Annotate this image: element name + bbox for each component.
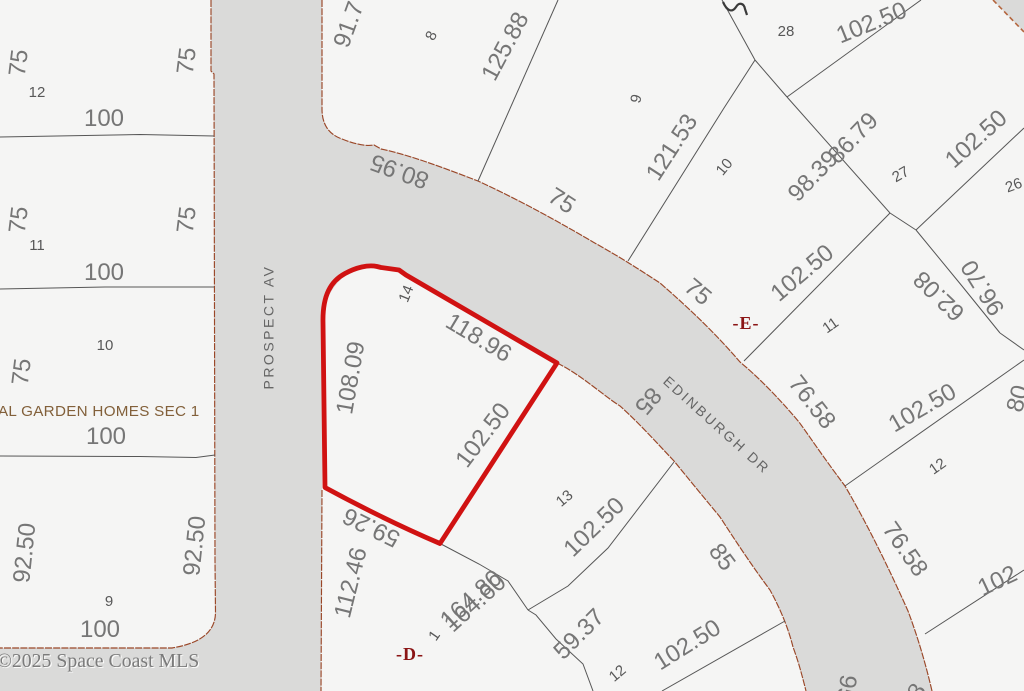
svg-text:28: 28: [778, 23, 795, 40]
svg-text:PROSPECT AV: PROSPECT AV: [261, 264, 277, 389]
svg-text:12: 12: [29, 84, 46, 101]
svg-text:75: 75: [4, 205, 34, 235]
svg-text:11: 11: [29, 237, 45, 254]
svg-text:-D-: -D-: [396, 644, 424, 664]
svg-text:©2025 Space Coast MLS: ©2025 Space Coast MLS: [0, 650, 199, 672]
svg-text:75: 75: [7, 357, 37, 387]
svg-text:100: 100: [84, 259, 124, 286]
svg-text:AL GARDEN HOMES SEC 1: AL GARDEN HOMES SEC 1: [0, 403, 200, 420]
svg-text:10: 10: [97, 337, 114, 354]
svg-text:100: 100: [86, 423, 126, 450]
svg-text:75: 75: [172, 205, 202, 235]
svg-text:100: 100: [84, 105, 124, 132]
svg-text:75: 75: [172, 46, 202, 76]
svg-text:100: 100: [80, 616, 120, 643]
svg-text:75: 75: [4, 48, 34, 78]
svg-text:-E-: -E-: [733, 313, 760, 333]
svg-text:9: 9: [105, 593, 113, 610]
